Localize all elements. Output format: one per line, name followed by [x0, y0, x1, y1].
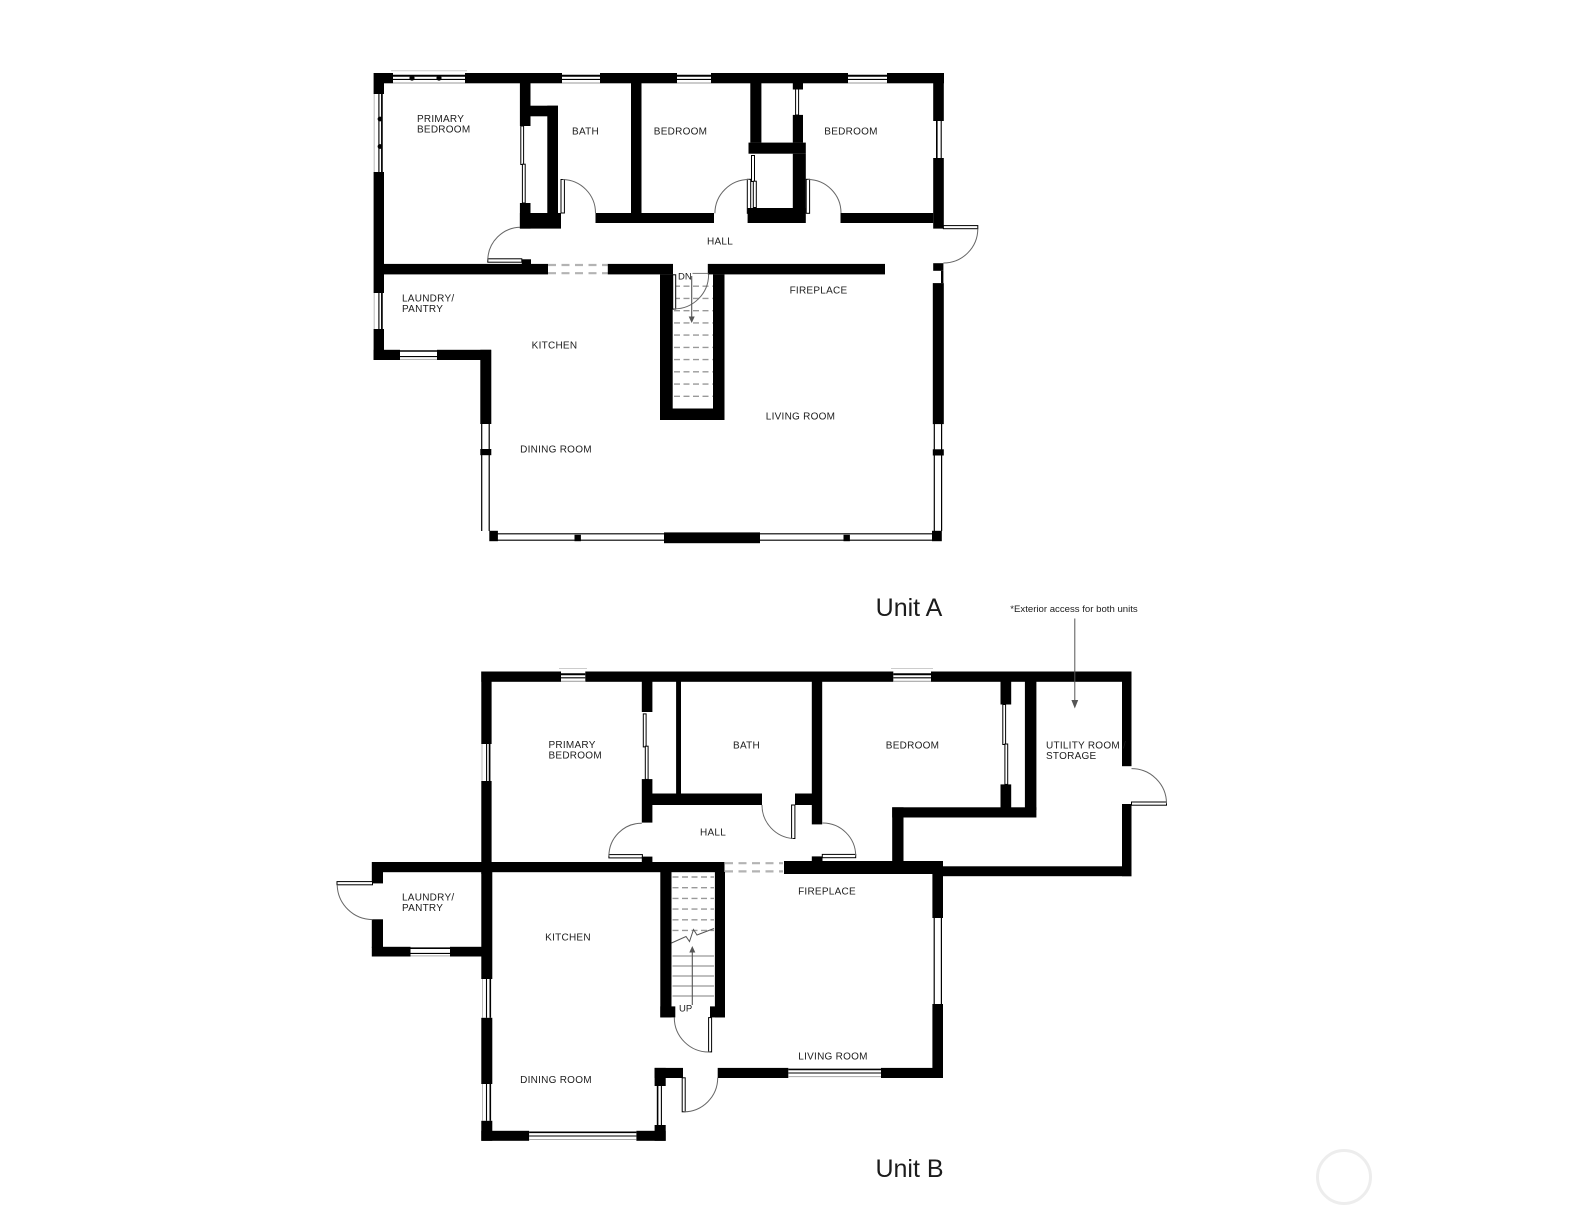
svg-text:BEDROOM: BEDROOM [549, 751, 602, 762]
svg-text:BEDROOM: BEDROOM [417, 125, 470, 136]
svg-text:UP: UP [679, 1004, 692, 1015]
svg-text:DINING ROOM: DINING ROOM [520, 445, 592, 456]
svg-text:*Exterior access for both unit: *Exterior access for both units [1010, 604, 1138, 615]
svg-text:BEDROOM: BEDROOM [824, 127, 877, 138]
svg-text:PANTRY: PANTRY [402, 903, 443, 914]
svg-text:LIVING ROOM: LIVING ROOM [798, 1052, 867, 1063]
svg-text:BATH: BATH [733, 741, 760, 752]
svg-text:HALL: HALL [707, 237, 733, 248]
svg-text:FIREPLACE: FIREPLACE [798, 887, 856, 898]
svg-text:KITCHEN: KITCHEN [532, 341, 578, 352]
svg-text:FIREPLACE: FIREPLACE [790, 286, 848, 297]
svg-text:LAUNDRY/: LAUNDRY/ [402, 294, 454, 305]
svg-text:PANTRY: PANTRY [402, 304, 443, 315]
svg-text:DN: DN [678, 272, 692, 283]
svg-text:PRIMARY: PRIMARY [417, 114, 464, 125]
svg-text:BATH: BATH [572, 127, 599, 138]
svg-text:KITCHEN: KITCHEN [545, 933, 591, 944]
svg-text:PRIMARY: PRIMARY [549, 740, 596, 751]
svg-text:STORAGE: STORAGE [1046, 751, 1097, 762]
svg-text:BEDROOM: BEDROOM [654, 127, 707, 138]
svg-text:DINING ROOM: DINING ROOM [520, 1075, 592, 1086]
svg-text:BEDROOM: BEDROOM [886, 741, 939, 752]
svg-text:Unit B: Unit B [875, 1155, 943, 1183]
svg-text:Unit A: Unit A [876, 594, 943, 622]
svg-text:LIVING ROOM: LIVING ROOM [766, 412, 835, 423]
svg-text:UTILITY ROOM /: UTILITY ROOM / [1046, 741, 1126, 752]
svg-text:HALL: HALL [700, 828, 726, 839]
svg-text:LAUNDRY/: LAUNDRY/ [402, 893, 454, 904]
